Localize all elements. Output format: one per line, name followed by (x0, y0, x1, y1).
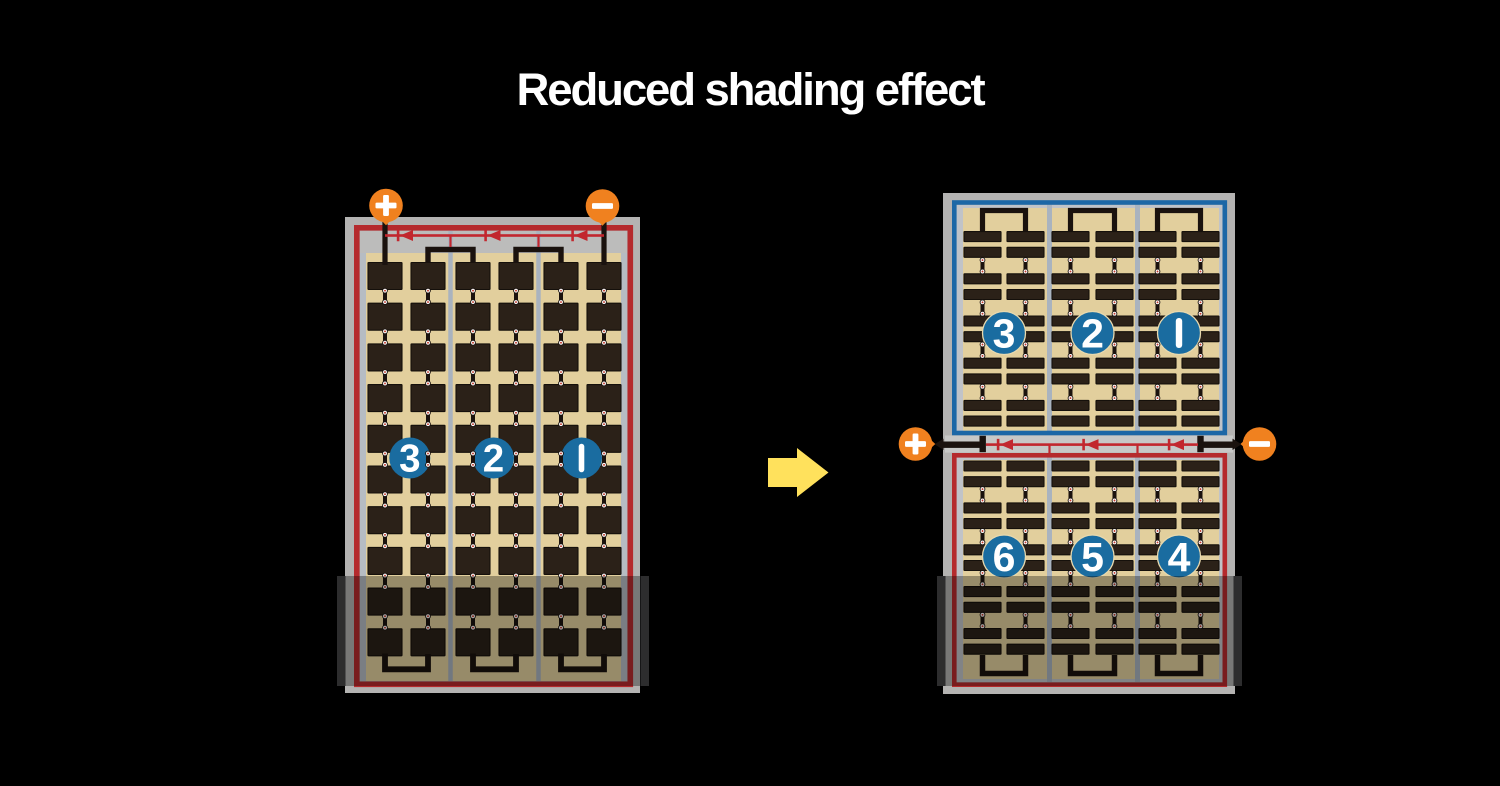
svg-text:6: 6 (993, 534, 1016, 580)
svg-text:3: 3 (993, 311, 1016, 357)
svg-text:3: 3 (399, 438, 420, 481)
svg-text:2: 2 (483, 438, 504, 481)
svg-text:Reduced shading effect: Reduced shading effect (516, 64, 985, 115)
svg-text:4: 4 (1168, 534, 1191, 580)
svg-text:2: 2 (1081, 311, 1104, 357)
svg-text:5: 5 (1081, 534, 1104, 580)
